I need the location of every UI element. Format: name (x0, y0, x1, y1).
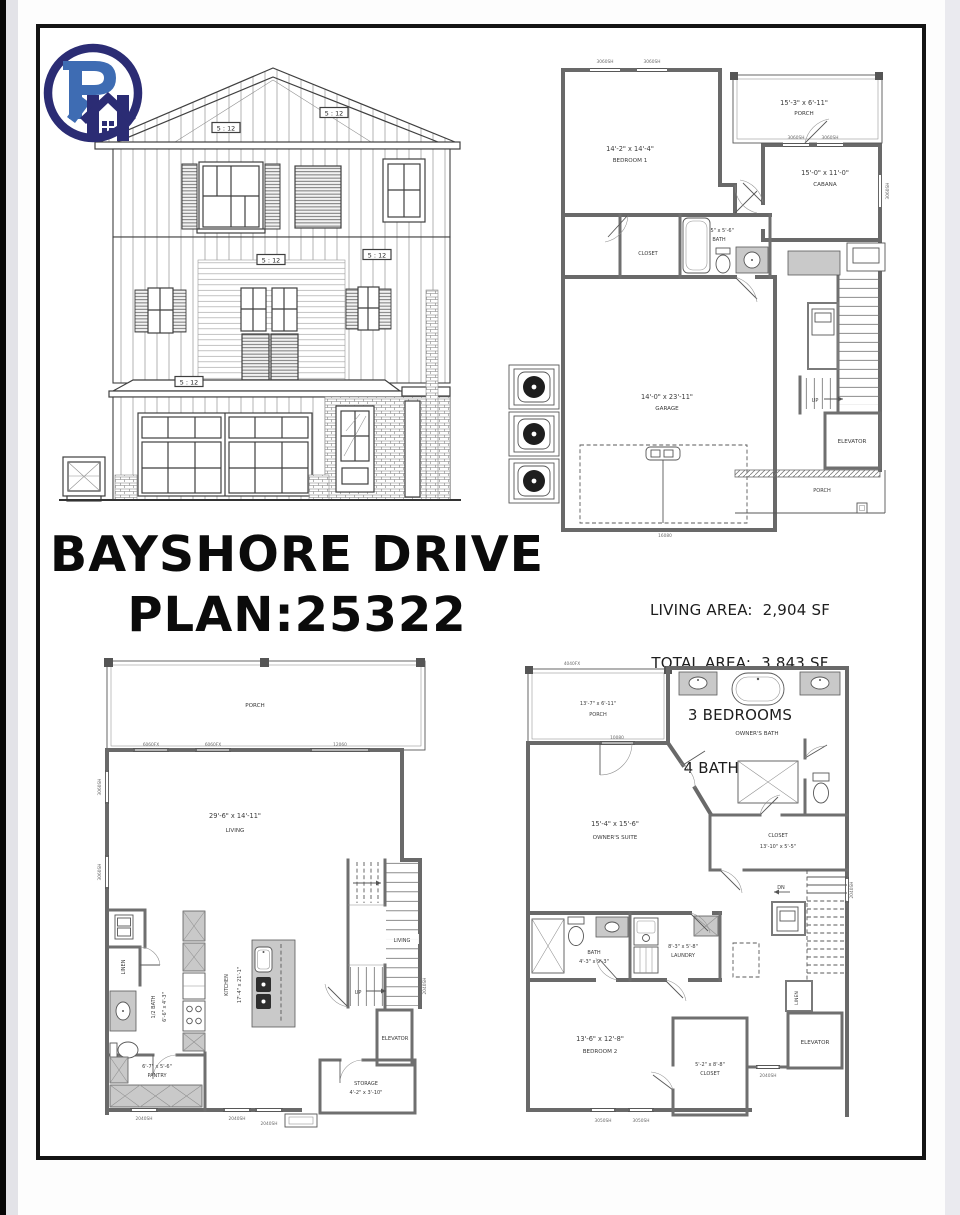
window-label: 3050SH (595, 1118, 612, 1124)
window-label: 3060SH (597, 59, 614, 65)
mech-closet (808, 303, 838, 369)
living-label: LIVING (226, 828, 245, 834)
closet-label: CLOSET (638, 251, 658, 257)
living-area: LIVING AREA: 2,904 SF (594, 602, 886, 620)
porch-label: PORCH (794, 111, 814, 117)
bedroom1-label: BEDROOM 1 (613, 158, 648, 164)
closet-label: CLOSET (768, 833, 788, 839)
kitchen-label: KITCHEN (224, 974, 230, 996)
storage-label: STORAGE (354, 1081, 378, 1087)
chase (733, 943, 759, 977)
counter (788, 251, 840, 275)
half-bath-dims: 6'-6" x 4'-3" (162, 992, 168, 1022)
linen-label: LINEN (794, 991, 800, 1005)
garage-door-area (580, 445, 747, 523)
up-label: UP (812, 398, 819, 404)
closet2-label: CLOSET (700, 1071, 720, 1077)
pitch-label: 5 : 12 (262, 257, 280, 265)
owners-bath-fixtures (679, 672, 840, 803)
water-heater (847, 243, 885, 271)
closet-dims: 13'-10" x 5'-5" (760, 844, 796, 850)
bath-label: BATH (587, 950, 601, 956)
linen-label: LINEN (121, 959, 127, 974)
window-label: 2040SH (760, 1073, 777, 1079)
window-label: 3060SH (885, 183, 891, 200)
window-label: 3060SH (97, 779, 103, 796)
porch-label: PORCH (589, 712, 607, 718)
up-label: UP (355, 990, 362, 996)
cabana-label: CABANA (813, 182, 837, 188)
third-floor-wall (113, 149, 450, 237)
plan-title-block: BAYSHORE DRIVE PLAN:25322 (36, 524, 558, 644)
kitchen-dims: 17'-4" x 21'-1" (237, 967, 243, 1003)
garage-dims: 14'-0" x 23'-11" (641, 393, 693, 401)
living-dims: 29'-6" x 14'-11" (209, 812, 261, 820)
bath-fixtures (683, 218, 768, 273)
garage-label: GARAGE (655, 406, 679, 412)
window-label: 2040SH (422, 978, 428, 995)
porch-column (405, 401, 420, 497)
second-floor-plan: PORCH 6060FX 6060FX 12060 3060SH 3060SH … (95, 655, 480, 1145)
laundry-dims: 8'-3" x 5'-8" (668, 944, 698, 950)
third-floor-plan: 13'-7" x 6'-11" PORCH 4040FX 10080 2040S… (520, 655, 880, 1155)
window-label: 3050SH (633, 1118, 650, 1124)
left-gray-edge (6, 0, 18, 1215)
window-label: 4040FX (564, 661, 580, 667)
storage-dims: 4'-2" x 3'-10" (349, 1090, 382, 1096)
half-bath-fixtures (110, 991, 138, 1058)
closet2-dims: 5'-2" x 8'-8" (695, 1062, 725, 1068)
window-label: 3060SH (97, 864, 103, 881)
window-label: 6060FX (143, 742, 159, 748)
living-stair-label: LIVING (394, 938, 411, 944)
window-label: 2040SH (229, 1116, 246, 1122)
porch-dims: 13'-7" x 6'-11" (580, 701, 616, 707)
elevator-label: ELEVATOR (801, 1040, 830, 1046)
pantry-label: PANTRY (147, 1073, 167, 1079)
pitch-label: 5 : 12 (368, 252, 386, 260)
porch-label: PORCH (245, 703, 265, 709)
first-floor-plan: 15'-3" x 6'-11" PORCH 14'-2" x 14'-4" BE… (495, 55, 895, 550)
window-label: 12060 (333, 742, 347, 748)
garage-door (138, 413, 312, 496)
pitch-label: 5 : 12 (325, 110, 343, 118)
porch-dims: 15'-3" x 6'-11" (780, 99, 828, 107)
stairs-lower-run (802, 378, 838, 409)
window-label: 3060SH (822, 135, 839, 141)
upper-porch: 15'-3" x 6'-11" PORCH (730, 72, 883, 143)
window-label: 3060SH (644, 59, 661, 65)
pitch-label: 5 : 12 (217, 125, 235, 133)
porch-edge (735, 470, 880, 477)
kitchen-island (252, 940, 295, 1027)
street-name: BAYSHORE DRIVE (36, 524, 558, 586)
window-label: 2040SH (849, 882, 855, 899)
cabana-dims: 15'-0" x 11'-0" (801, 169, 849, 177)
bedroom2-label: BEDROOM 2 (583, 1049, 618, 1055)
pantry-dims: 6'-7" x 5'-6" (142, 1064, 172, 1070)
lower-porch-label: PORCH (813, 488, 831, 494)
elevator-label: ELEVATOR (382, 1036, 409, 1042)
owners-suite-label: OWNER'S SUITE (593, 835, 638, 841)
appliance-closet (115, 915, 133, 939)
window-label: 2040SH (261, 1121, 278, 1127)
bedroom2-dims: 13'-6" x 12'-8" (576, 1035, 624, 1043)
floor-plan-sheet: 5 : 12 5 : 12 5 : 12 5 : 12 5 : 12 BAYSH… (0, 0, 960, 1215)
bedroom1-dims: 14'-2" x 14'-4" (606, 145, 654, 153)
right-gray-edge (945, 0, 960, 1215)
brick-pier (426, 290, 438, 500)
hvac-condenser-stack (509, 365, 559, 503)
door-swings (140, 947, 363, 1083)
upper-porch: PORCH (104, 658, 425, 750)
half-bath-label: 1/2 BATH (151, 995, 157, 1018)
window-label: 2040SH (136, 1116, 153, 1122)
utility-box (63, 457, 105, 501)
owners-suite-dims: 15'-4" x 15'-6" (591, 820, 639, 828)
pitch-label: 5 : 12 (180, 379, 198, 387)
porch: 13'-7" x 6'-11" PORCH (525, 666, 672, 743)
stoop (285, 1114, 317, 1127)
bath-dims: 4'-3" x 9'-3" (579, 959, 609, 965)
ph-logo (38, 40, 148, 150)
kitchen-cabinets (183, 911, 205, 1051)
mech-closet (772, 902, 805, 935)
entry-door (336, 406, 374, 492)
bath-label: BATH (712, 237, 726, 243)
main-roof (95, 68, 460, 149)
stairs-up-run (839, 273, 880, 405)
elevator-label: ELEVATOR (838, 439, 867, 445)
window-label: 6060FX (205, 742, 221, 748)
garage-door-label: 16080 (658, 533, 672, 539)
window-label: 3060SH (788, 135, 805, 141)
laundry-label: LAUNDRY (671, 953, 696, 959)
door-label: 10080 (610, 735, 624, 741)
plan-number: PLAN:25322 (36, 586, 558, 644)
owners-bath-label: OWNER'S BATH (735, 731, 778, 737)
